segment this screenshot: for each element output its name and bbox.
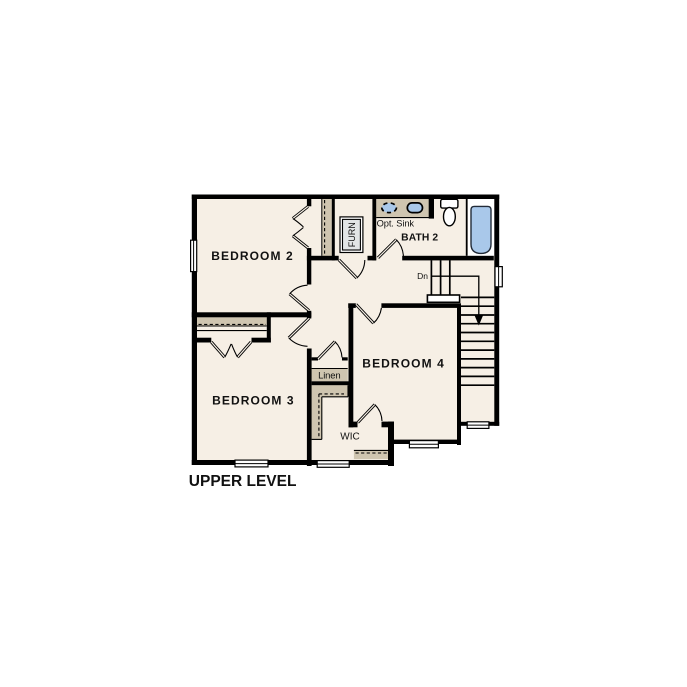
svg-text:Dn: Dn (417, 271, 428, 281)
svg-text:WIC: WIC (340, 432, 359, 443)
svg-text:UPPER LEVEL: UPPER LEVEL (189, 473, 297, 490)
svg-text:BEDROOM 4: BEDROOM 4 (362, 356, 445, 370)
svg-text:BEDROOM 3: BEDROOM 3 (212, 393, 295, 407)
svg-text:Linen: Linen (318, 370, 340, 381)
svg-text:FURN: FURN (347, 222, 357, 247)
svg-text:BEDROOM 2: BEDROOM 2 (211, 249, 294, 263)
svg-text:Opt. Sink: Opt. Sink (377, 219, 415, 229)
svg-text:BATH 2: BATH 2 (401, 233, 438, 244)
